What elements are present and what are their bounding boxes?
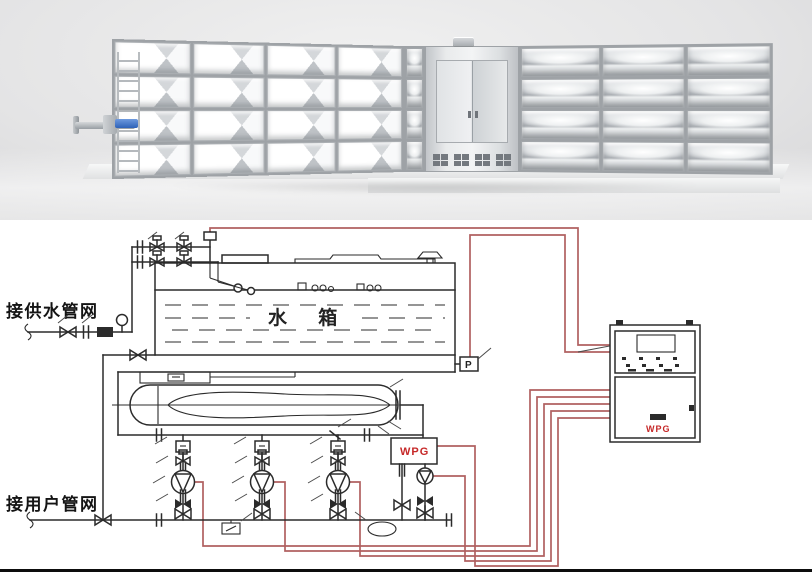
- vent-cap: [418, 252, 442, 258]
- door-leaves: [436, 60, 508, 143]
- float-ball: [248, 288, 255, 295]
- vent-grille: [433, 154, 448, 166]
- user-discharge-line: 接用户管网: [6, 494, 452, 536]
- pump-station-schematic: 接供水管网: [0, 220, 812, 572]
- tank-panel: [193, 110, 265, 141]
- wpg-butterfly-valve: [417, 506, 433, 520]
- tank-body: [132, 46, 765, 172]
- water-tank-render: [0, 0, 812, 220]
- control-wire: [274, 397, 610, 551]
- tank-panel: [406, 110, 423, 139]
- control-cabinet: WPG: [578, 320, 700, 442]
- schematic-svg: 接供水管网: [0, 220, 812, 572]
- tank-panel: [337, 78, 402, 108]
- fill-valve-manifold: [132, 232, 218, 332]
- door-vents: [433, 154, 511, 166]
- float-valve-platform: [222, 255, 268, 263]
- tank-panel: [337, 46, 402, 77]
- tank-panel: [267, 110, 335, 141]
- wpg-booster-unit: WPG: [378, 426, 437, 520]
- control-wire: [437, 418, 610, 566]
- side-ladder: [117, 52, 140, 173]
- door-handle: [468, 111, 471, 118]
- pressure-gauge: [117, 315, 128, 326]
- level-switch: [357, 284, 364, 290]
- tank-panel: [337, 141, 402, 172]
- door-handle: [475, 111, 478, 118]
- inline-device: [368, 522, 396, 536]
- panel-grid-left: [112, 39, 404, 179]
- tank-panel: [406, 79, 423, 108]
- vent-grille: [475, 154, 490, 166]
- tank-panel: [406, 48, 423, 77]
- tank-panel: [521, 141, 601, 171]
- pressure-sensor: P: [455, 348, 491, 371]
- pump-branch-2: [232, 435, 274, 520]
- tank-panel: [193, 43, 265, 75]
- control-wire: [350, 404, 610, 556]
- tank-label: 水 箱: [268, 306, 350, 329]
- strainer: [97, 327, 113, 337]
- tank-panel: [603, 141, 685, 171]
- tank-panel: [686, 45, 770, 76]
- floor-shadow: [95, 184, 775, 196]
- tank-panel: [686, 78, 770, 108]
- supply-inlet-line: 接供水管网: [6, 301, 132, 340]
- pressure-sensor-label: P: [465, 360, 472, 371]
- tank-panel: [521, 47, 601, 77]
- tank-access-door: [425, 46, 519, 172]
- tank-panel: [686, 110, 770, 140]
- wpg-unit-label: WPG: [400, 446, 429, 458]
- fill-valve: [177, 236, 191, 251]
- tank-panel: [267, 77, 335, 108]
- tank-panel: [267, 45, 335, 76]
- cabinet-name-plate: [650, 414, 666, 420]
- fill-valve: [150, 236, 164, 251]
- pump-branch-1: [153, 435, 195, 520]
- control-wire: [470, 235, 610, 357]
- tank-panel: [603, 110, 685, 140]
- pump-branch-3: [308, 435, 350, 520]
- vent-grille: [496, 154, 511, 166]
- tank-panel: [406, 141, 423, 170]
- tank-panel: [193, 77, 265, 108]
- valve-handle-blue: [115, 119, 138, 128]
- vent-grille: [454, 154, 469, 166]
- supply-network-label: 接供水管网: [6, 301, 99, 321]
- tank-panel: [521, 110, 601, 139]
- cabinet-door-handle: [689, 405, 694, 411]
- level-instrument: [140, 372, 295, 383]
- solenoid-pilot-valve: [204, 232, 216, 240]
- cabinet-brand-label: WPG: [646, 424, 671, 434]
- tank-panel: [603, 46, 685, 76]
- user-network-label: 接用户管网: [6, 494, 99, 514]
- panel-grid-narrow: [404, 46, 425, 172]
- control-wire: [433, 411, 610, 561]
- suction-header: [118, 419, 423, 441]
- tank-panel: [193, 143, 265, 175]
- tank-panel: [337, 110, 402, 140]
- buffer-vessel: [112, 379, 423, 438]
- panel-grid-right: [519, 43, 773, 175]
- roof-vent-flange: [453, 37, 474, 46]
- tank-panel: [521, 79, 601, 108]
- control-wire: [192, 390, 610, 546]
- tank-panel: [686, 142, 770, 173]
- tank-top-bracket: [295, 255, 435, 263]
- level-switch: [298, 283, 306, 290]
- tank-panel: [603, 78, 685, 108]
- tank-panel: [267, 142, 335, 173]
